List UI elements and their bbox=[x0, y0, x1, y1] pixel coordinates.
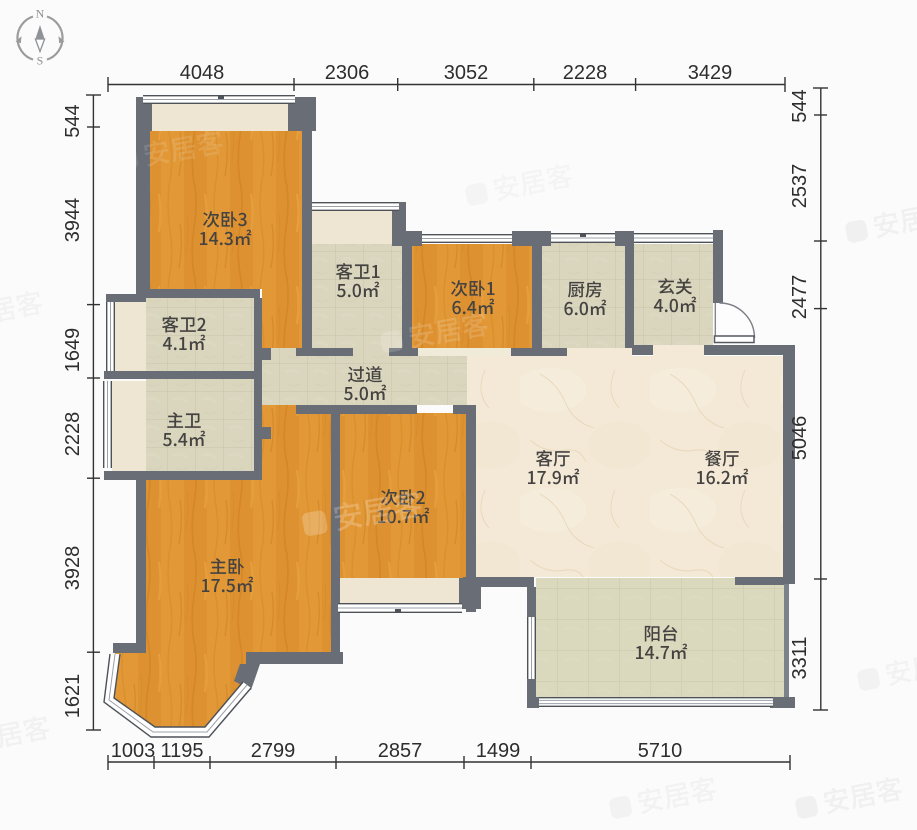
svg-text:2537: 2537 bbox=[789, 164, 811, 209]
svg-text:2799: 2799 bbox=[251, 740, 296, 762]
svg-text:5710: 5710 bbox=[638, 740, 683, 762]
svg-text:1195: 1195 bbox=[160, 740, 203, 762]
svg-text:3311: 3311 bbox=[789, 636, 811, 679]
svg-text:S: S bbox=[37, 54, 44, 68]
svg-text:1499: 1499 bbox=[476, 740, 521, 762]
svg-text:1649: 1649 bbox=[62, 328, 84, 373]
svg-text:N: N bbox=[36, 7, 45, 21]
svg-text:544: 544 bbox=[62, 104, 84, 137]
svg-text:1621: 1621 bbox=[62, 674, 84, 719]
svg-text:1003: 1003 bbox=[111, 740, 156, 762]
svg-text:2306: 2306 bbox=[325, 62, 370, 84]
svg-text:2477: 2477 bbox=[789, 275, 811, 320]
svg-text:2228: 2228 bbox=[62, 412, 84, 457]
svg-text:5046: 5046 bbox=[789, 416, 811, 461]
svg-text:3052: 3052 bbox=[444, 62, 489, 84]
svg-text:2228: 2228 bbox=[563, 62, 608, 84]
svg-text:544: 544 bbox=[789, 89, 811, 122]
svg-text:3944: 3944 bbox=[62, 198, 84, 243]
svg-text:4048: 4048 bbox=[180, 62, 225, 84]
svg-text:3928: 3928 bbox=[62, 546, 84, 591]
svg-text:2857: 2857 bbox=[378, 740, 423, 762]
svg-text:3429: 3429 bbox=[688, 62, 733, 84]
